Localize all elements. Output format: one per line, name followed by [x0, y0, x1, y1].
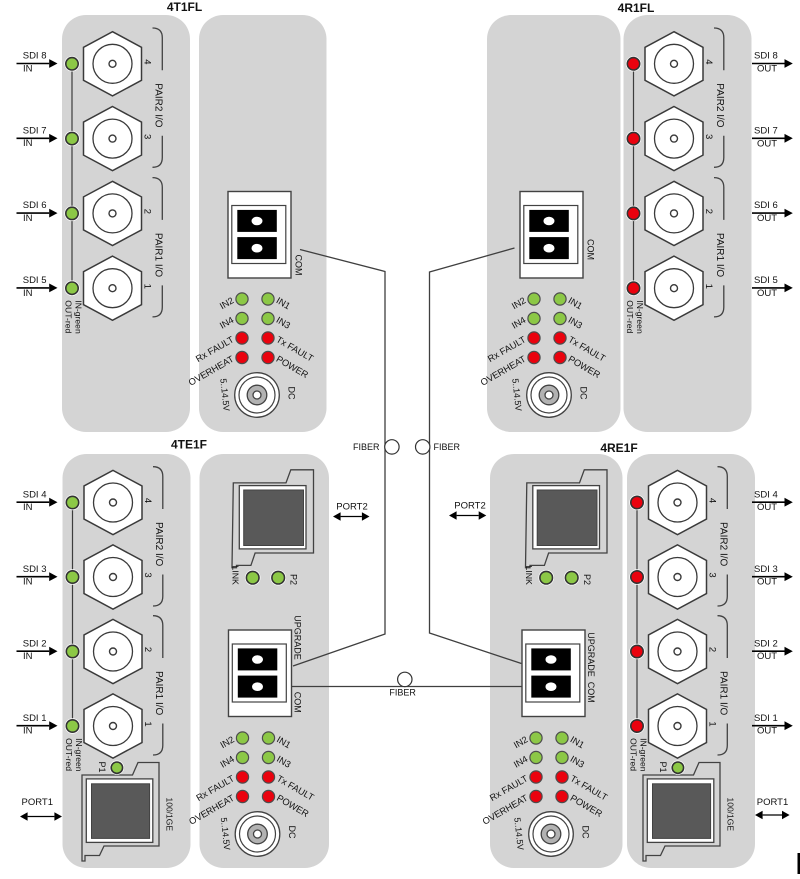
svg-text:2: 2 [703, 209, 714, 214]
svg-text:OUT: OUT [757, 502, 777, 513]
svg-text:IN-greenOUT-red: IN-greenOUT-red [625, 300, 645, 334]
svg-text:2: 2 [707, 647, 718, 652]
svg-text:UPGRADE: UPGRADE [586, 632, 596, 677]
svg-text:SDI 4: SDI 4 [23, 489, 47, 500]
svg-text:100/1GE: 100/1GE [165, 798, 175, 832]
svg-text:IN: IN [23, 138, 33, 149]
svg-text:PAIR1 I/O: PAIR1 I/O [714, 233, 725, 277]
svg-text:4: 4 [142, 59, 153, 64]
svg-text:PORT1: PORT1 [22, 797, 54, 808]
svg-text:100/1GE: 100/1GE [726, 798, 736, 832]
svg-text:SDI 7: SDI 7 [23, 125, 47, 136]
svg-text:P2: P2 [582, 574, 592, 585]
svg-text:SDI 1: SDI 1 [754, 713, 778, 724]
svg-text:DC: DC [581, 826, 591, 839]
svg-text:P1: P1 [97, 762, 107, 773]
svg-text:SDI 8: SDI 8 [23, 51, 47, 62]
svg-text:4T1FL: 4T1FL [167, 0, 202, 14]
svg-text:4R1FL: 4R1FL [618, 1, 655, 15]
svg-text:SDI 2: SDI 2 [23, 638, 47, 649]
svg-text:IN: IN [23, 502, 33, 513]
svg-text:PAIR2 I/O: PAIR2 I/O [152, 83, 163, 127]
svg-text:2: 2 [142, 209, 153, 214]
svg-text:PAIR1 I/O: PAIR1 I/O [153, 671, 164, 715]
svg-text:IN: IN [23, 726, 33, 737]
svg-text:IN-greenOUT-red: IN-greenOUT-red [64, 738, 84, 772]
svg-text:IN-greenOUT-red: IN-greenOUT-red [64, 300, 84, 334]
svg-text:OUT: OUT [757, 651, 777, 662]
svg-text:COM: COM [293, 692, 303, 713]
svg-text:DC: DC [287, 387, 297, 400]
svg-text:OUT: OUT [757, 726, 777, 737]
svg-text:PAIR1 I/O: PAIR1 I/O [717, 671, 728, 715]
svg-text:LINK: LINK [231, 566, 241, 586]
svg-text:4RE1F: 4RE1F [600, 441, 637, 455]
svg-text:FIBER: FIBER [353, 442, 380, 452]
svg-text:1: 1 [142, 721, 153, 726]
svg-text:LINK: LINK [524, 566, 534, 586]
svg-text:2: 2 [142, 647, 153, 652]
svg-text:IN-greenOUT-red: IN-greenOUT-red [629, 738, 649, 772]
svg-text:COM: COM [586, 239, 596, 260]
svg-text:4TE1F: 4TE1F [171, 438, 207, 452]
svg-text:P1: P1 [658, 762, 668, 773]
svg-text:IN: IN [23, 63, 33, 74]
svg-text:PORT2: PORT2 [454, 501, 486, 512]
svg-text:PORT2: PORT2 [336, 501, 368, 512]
svg-text:1: 1 [707, 721, 718, 726]
svg-text:PAIR2 I/O: PAIR2 I/O [153, 522, 164, 566]
svg-text:3: 3 [703, 134, 714, 139]
svg-text:4: 4 [703, 59, 714, 64]
svg-text:SDI 7: SDI 7 [754, 125, 778, 136]
svg-text:OUT: OUT [757, 213, 777, 224]
svg-text:OUT: OUT [757, 138, 777, 149]
svg-text:1: 1 [703, 284, 714, 289]
svg-text:PAIR1 I/O: PAIR1 I/O [152, 233, 163, 277]
svg-text:SDI 6: SDI 6 [754, 200, 778, 211]
svg-text:SDI 8: SDI 8 [754, 51, 778, 62]
svg-text:SDI 2: SDI 2 [754, 638, 778, 649]
svg-text:PORT1: PORT1 [757, 797, 789, 808]
svg-text:DC: DC [579, 387, 589, 400]
svg-text:OUT: OUT [757, 288, 777, 299]
svg-text:UPGRADE: UPGRADE [293, 615, 303, 660]
svg-text:SDI 1: SDI 1 [23, 713, 47, 724]
svg-text:COM: COM [294, 255, 304, 276]
svg-text:IN: IN [23, 651, 33, 662]
svg-text:IN: IN [23, 213, 33, 224]
svg-text:SDI 5: SDI 5 [754, 275, 778, 286]
svg-text:FIBER: FIBER [389, 687, 416, 697]
svg-text:3: 3 [707, 572, 718, 577]
svg-text:SDI 4: SDI 4 [754, 489, 778, 500]
svg-text:OUT: OUT [757, 64, 777, 75]
svg-text:OUT: OUT [757, 577, 777, 588]
svg-text:SDI 6: SDI 6 [23, 200, 47, 211]
svg-text:FIBER: FIBER [434, 442, 461, 452]
svg-text:PAIR2 I/O: PAIR2 I/O [714, 83, 725, 127]
svg-text:1: 1 [142, 284, 153, 289]
svg-text:SDI 3: SDI 3 [23, 564, 47, 575]
svg-text:4: 4 [142, 498, 153, 503]
svg-text:IN: IN [23, 577, 33, 588]
svg-text:3: 3 [142, 572, 153, 577]
svg-text:SDI 5: SDI 5 [23, 275, 47, 286]
svg-text:PAIR2 I/O: PAIR2 I/O [717, 522, 728, 566]
svg-text:DC: DC [287, 826, 297, 839]
svg-text:IN: IN [23, 288, 33, 299]
svg-text:COM: COM [586, 682, 596, 703]
svg-text:3: 3 [142, 134, 153, 139]
svg-text:4: 4 [707, 498, 718, 503]
svg-text:SDI 3: SDI 3 [754, 564, 778, 575]
svg-text:P2: P2 [289, 574, 299, 585]
